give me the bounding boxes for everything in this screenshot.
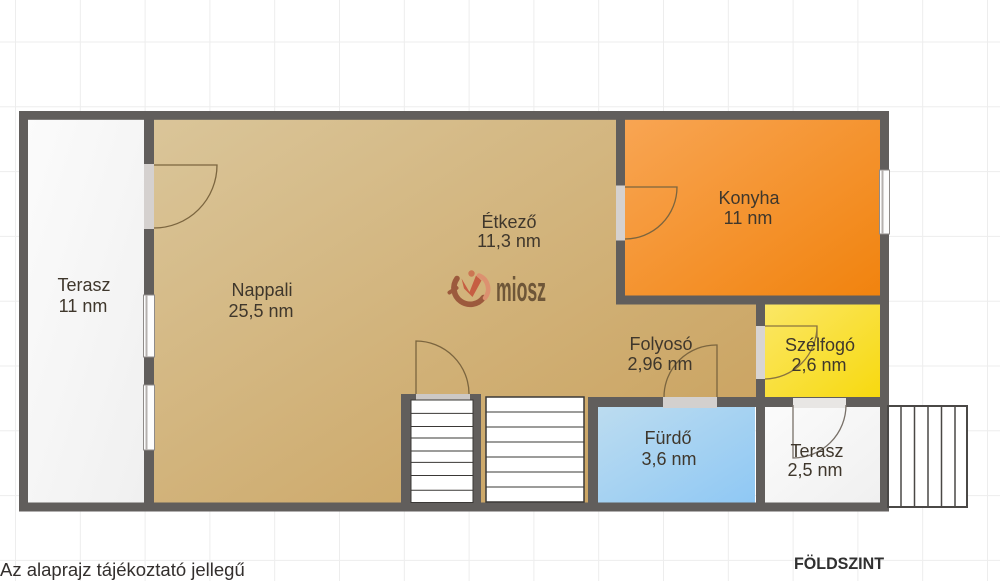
svg-text:11 nm: 11 nm — [59, 296, 108, 316]
svg-text:2,6 nm: 2,6 nm — [791, 355, 846, 375]
svg-text:2,96 nm: 2,96 nm — [627, 354, 692, 374]
svg-text:Szélfogó: Szélfogó — [785, 335, 855, 355]
svg-text:Az alaprajz tájékoztató jelleg: Az alaprajz tájékoztató jellegű — [0, 559, 245, 580]
svg-text:2,5 nm: 2,5 nm — [787, 460, 842, 480]
svg-text:25,5 nm: 25,5 nm — [228, 301, 293, 321]
svg-text:FÖLDSZINT: FÖLDSZINT — [794, 554, 885, 573]
svg-text:Étkező: Étkező — [481, 212, 536, 232]
svg-text:Konyha: Konyha — [718, 188, 780, 208]
svg-text:miosz: miosz — [496, 271, 546, 309]
svg-text:Terasz: Terasz — [790, 441, 843, 461]
svg-text:3,6 nm: 3,6 nm — [641, 449, 696, 469]
svg-text:Fürdő: Fürdő — [644, 428, 691, 448]
svg-text:11 nm: 11 nm — [724, 208, 773, 228]
svg-text:11,3 nm: 11,3 nm — [477, 231, 541, 251]
svg-text:Folyosó: Folyosó — [629, 334, 692, 354]
svg-text:Terasz: Terasz — [57, 275, 110, 295]
svg-text:Nappali: Nappali — [231, 280, 292, 300]
